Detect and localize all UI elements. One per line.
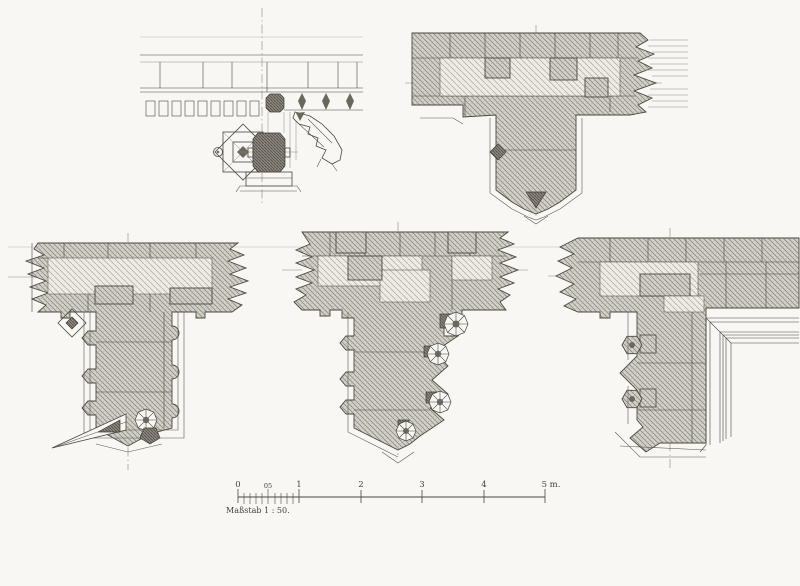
cornice-panel-joints <box>160 62 357 92</box>
gargoyle-plan <box>293 112 342 171</box>
dentil-row <box>146 101 259 116</box>
construction-guides <box>8 37 797 247</box>
scale-major-ticks <box>238 489 545 503</box>
scale-tick-label: 05 <box>264 482 272 490</box>
crocket-blobs <box>298 93 354 110</box>
scale-bar: 0 05 1 2 3 4 5 m. Maßstab 1 : 50. <box>226 480 560 515</box>
scale-tick-label: 4 <box>481 480 486 490</box>
scale-tick-label: 2 <box>358 480 363 490</box>
plan-buttress-corner <box>548 228 799 470</box>
pier-section-upper <box>266 94 284 112</box>
scale-tick-label: 1 <box>296 480 301 490</box>
plan-buttress-top-right <box>405 25 688 224</box>
plate-canvas: 0 05 1 2 3 4 5 m. Maßstab 1 : 50. <box>0 0 800 586</box>
engraving-sheet: 0 05 1 2 3 4 5 m. Maßstab 1 : 50. <box>0 0 800 586</box>
scale-tick-label: 3 <box>419 480 424 490</box>
scale-tick-label: 0 <box>235 480 240 490</box>
plan-buttress-middle-left <box>8 233 248 470</box>
plan-buttress-middle-center <box>282 222 528 463</box>
scale-tick-label: 5 m. <box>542 480 561 490</box>
profile-ruling <box>646 40 688 107</box>
dark-base-blob <box>140 428 160 444</box>
scale-caption: Maßstab 1 : 50. <box>226 506 290 515</box>
corner-plinth-moldings <box>700 318 799 452</box>
